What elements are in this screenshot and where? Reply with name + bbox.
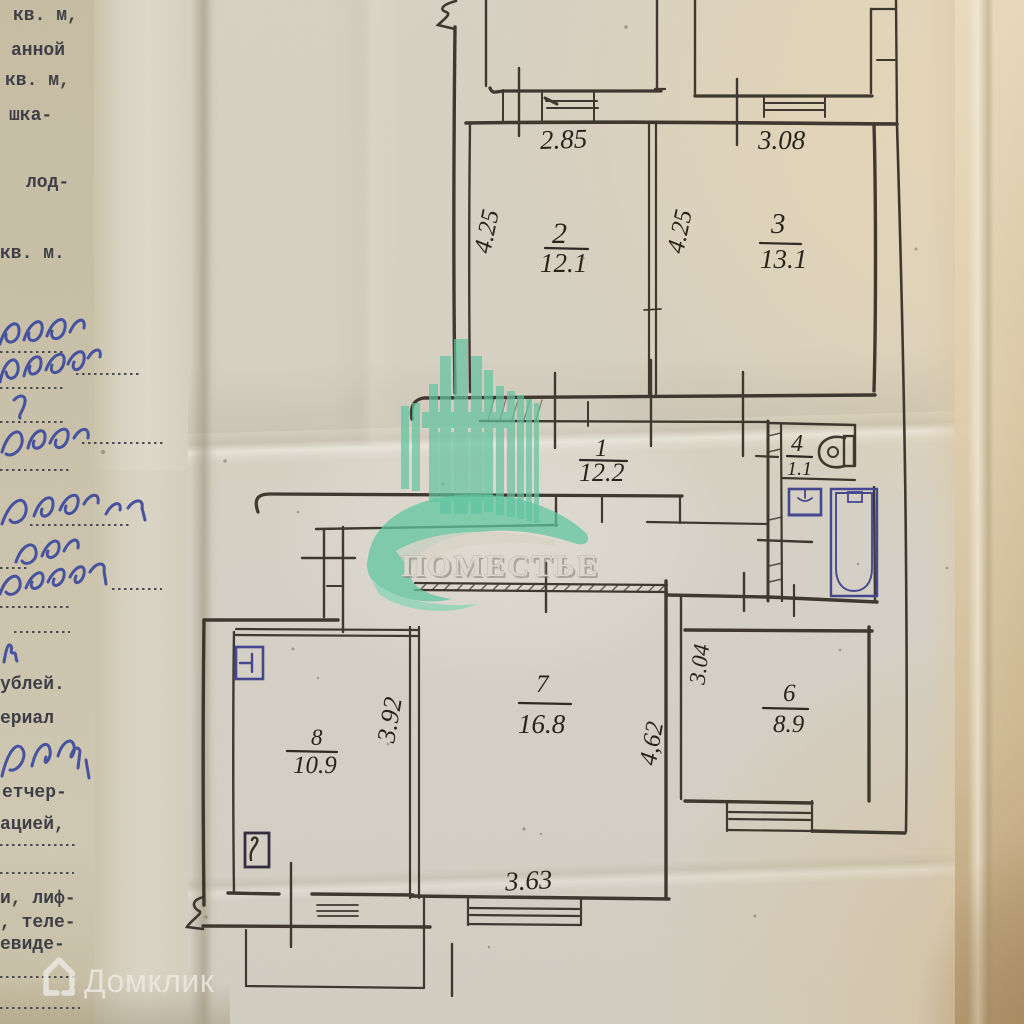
svg-text:Домклик: Домклик (84, 963, 215, 999)
